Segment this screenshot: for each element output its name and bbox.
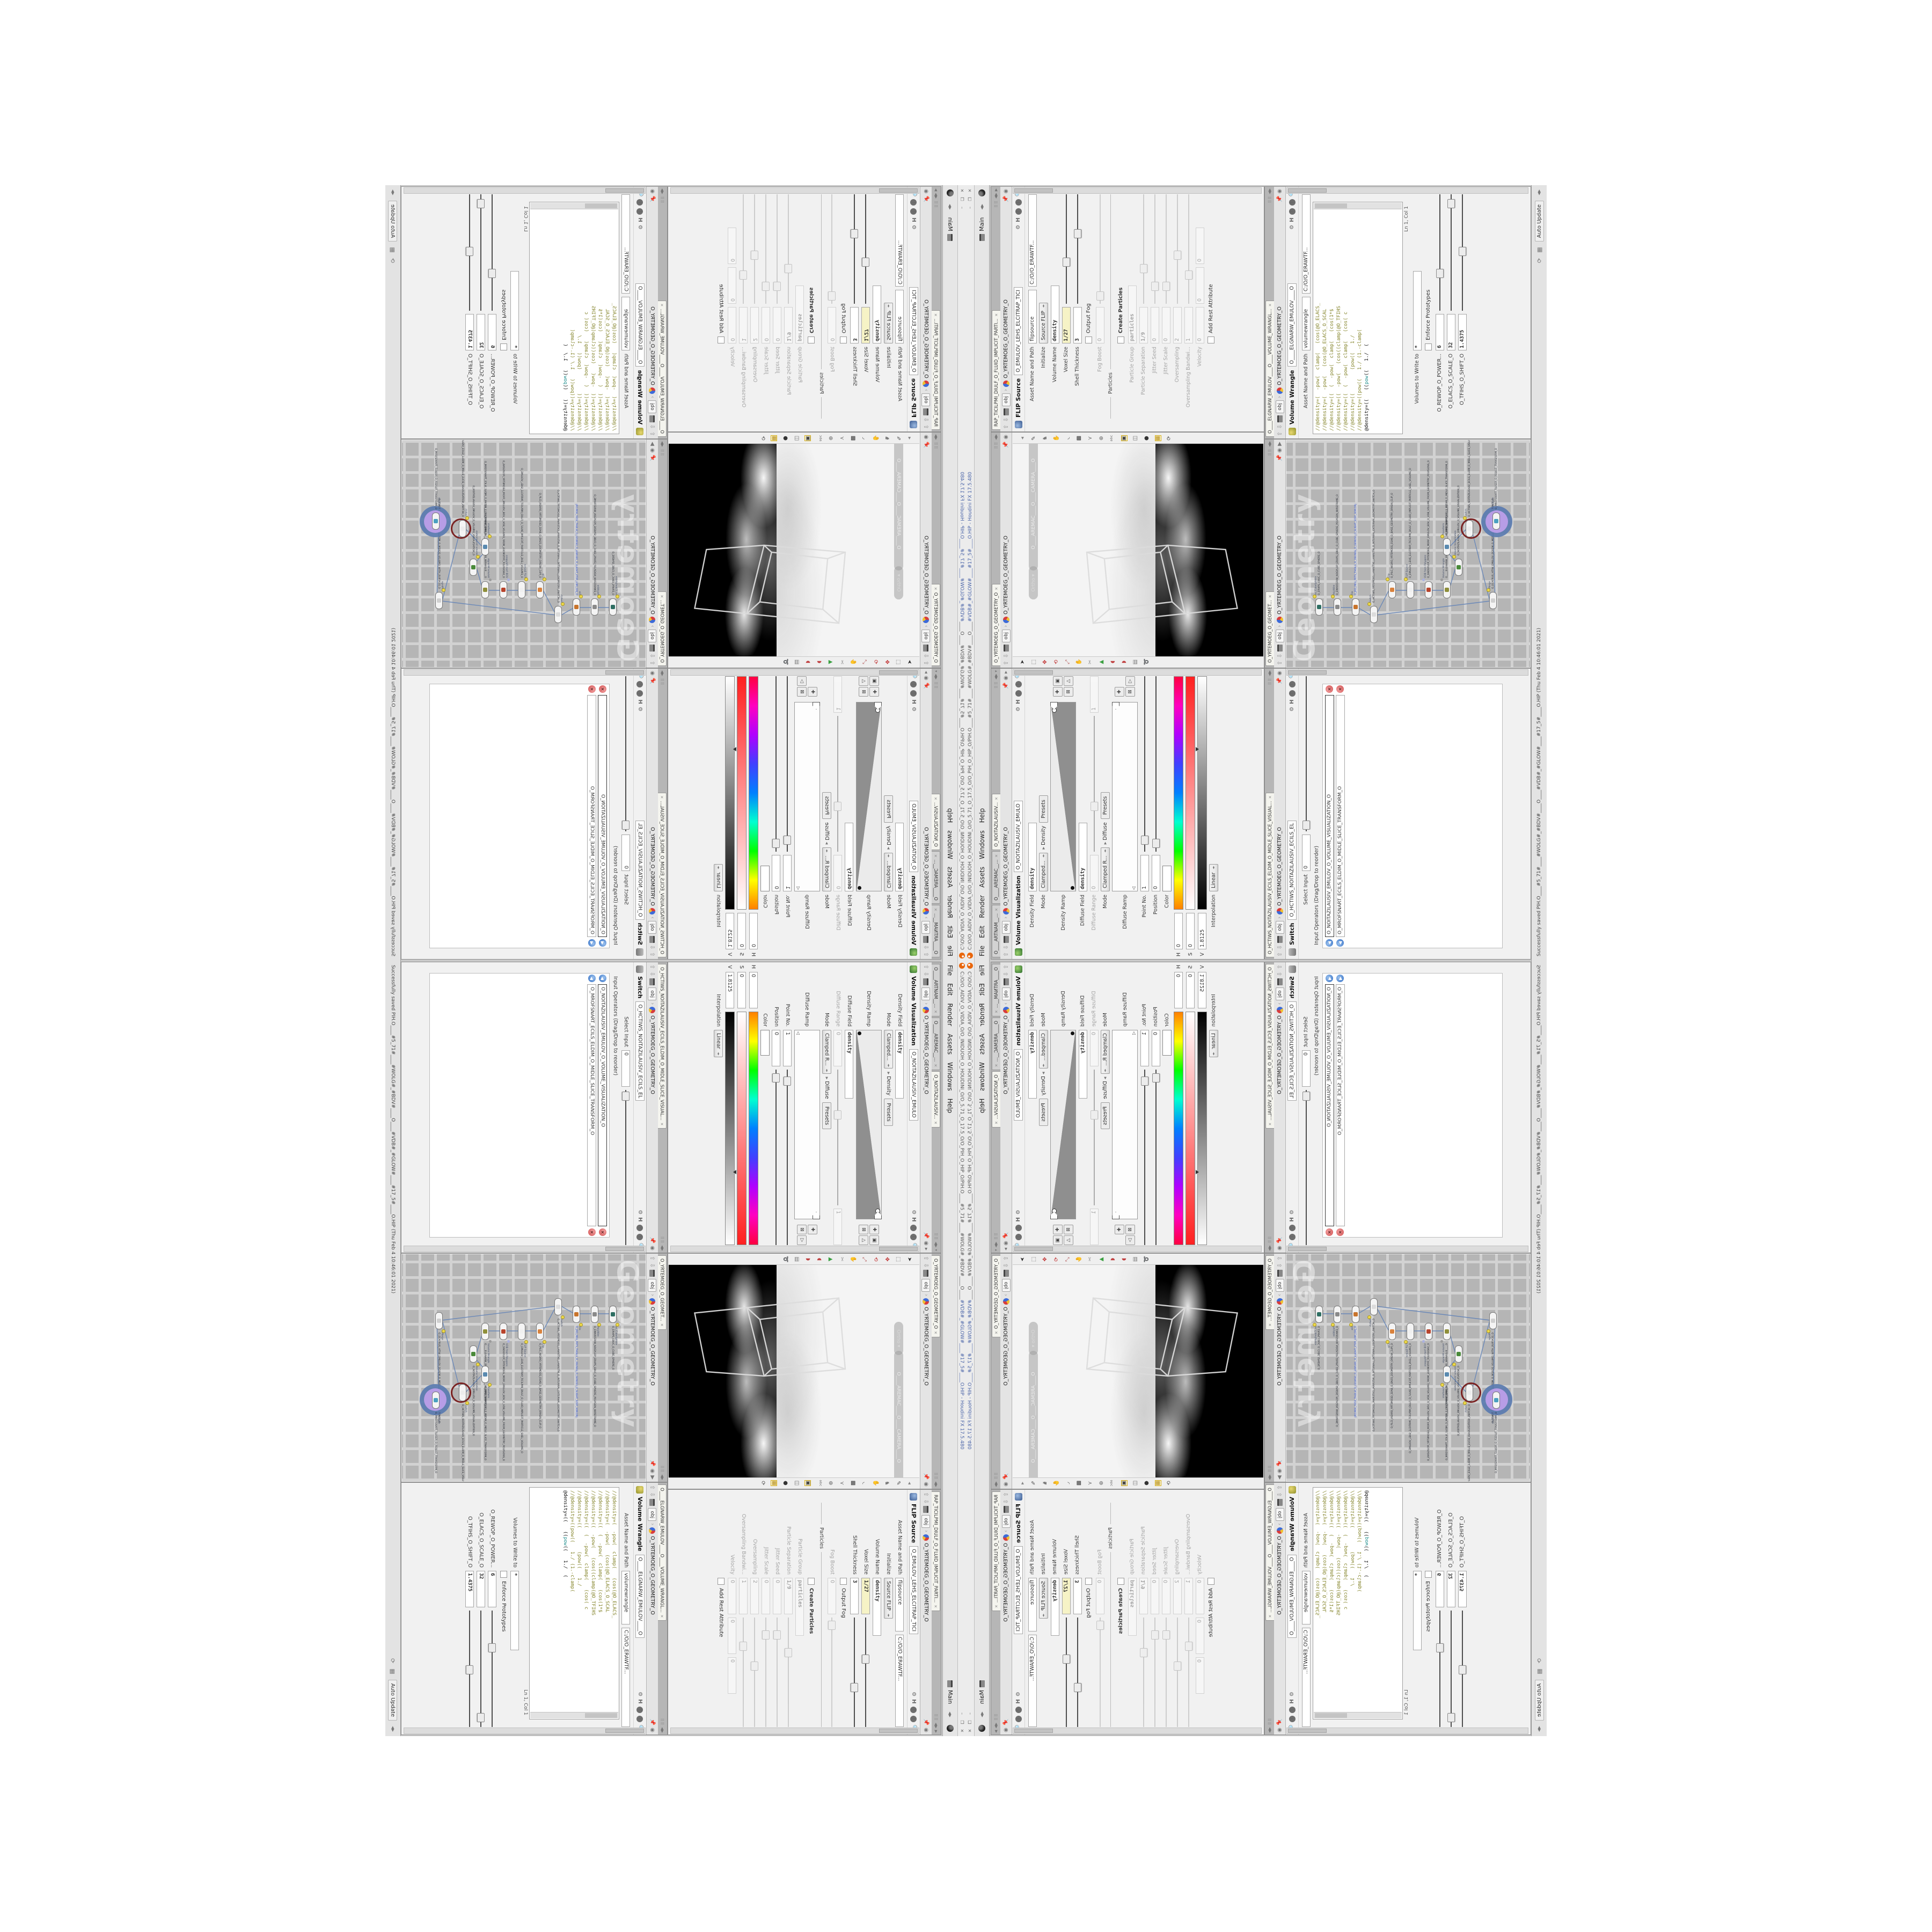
density-ramp[interactable] [856, 702, 882, 891]
eye-box-icon[interactable]: ◫ [1133, 436, 1138, 441]
input-operator-field[interactable]: O_MROFSNART_ECILS_ELDIM_O_MIDLE_SLICE_TR… [1336, 695, 1345, 937]
wire-y-icon[interactable]: ⋎ [839, 1481, 844, 1485]
network-path[interactable]: O_YRTEMOEG_O_GEOMETRY_O [1003, 299, 1009, 378]
output-fog-checkbox[interactable] [1085, 336, 1092, 343]
network-node[interactable] [609, 1306, 617, 1323]
network-path[interactable]: O_YRTEMOEG_O_GEOMETRY_O [1003, 1307, 1009, 1386]
nav-down-icon[interactable]: ⇩ [1002, 971, 1009, 976]
flip-scrollbar[interactable] [670, 1728, 919, 1734]
desktop-selector[interactable]: Main [978, 217, 985, 241]
select-tool-icon[interactable]: ➤ [906, 660, 912, 664]
nav-up-icon[interactable]: ⇧ [1002, 1492, 1009, 1497]
point-no-slider[interactable] [1140, 1070, 1148, 1245]
insert-input-icon[interactable]: ◀ [1336, 939, 1344, 947]
network-path[interactable]: O_YRTEMOEG_O_GEOMETRY_O [1003, 1543, 1009, 1622]
viewport-stage[interactable]: Ortho ▾ O____AREMAC____O____CAMERA____O [669, 444, 919, 656]
pane-menu-icon[interactable]: ▾ [934, 670, 938, 672]
diffuse-range-max-input[interactable]: 1 [834, 676, 843, 713]
target-icon[interactable]: ◉ [923, 435, 929, 440]
menu-item-edit[interactable]: Edit [978, 926, 986, 938]
shell-thickness-input[interactable]: 3 [851, 307, 859, 343]
network-node[interactable] [432, 1392, 440, 1409]
network-path[interactable]: O_YRTEMOEG_O_GEOMETRY_O [923, 536, 929, 614]
camera-pill[interactable]: O____AREMAC____O____CAMERA____O [894, 1351, 903, 1477]
nav-up-icon[interactable]: ⇧ [923, 1492, 930, 1497]
param-value-input[interactable]: 32 [1447, 1571, 1455, 1607]
diffuse-presets-button[interactable]: Presets [822, 1102, 831, 1130]
param-slider[interactable] [1436, 1611, 1444, 1727]
network-node[interactable] [1370, 606, 1378, 623]
network-path[interactable]: O_YRTEMOEG_O_GEOMETRY_O [1003, 536, 1009, 614]
network-node[interactable] [459, 1384, 466, 1401]
scroll-up-icon[interactable]: ◂ [906, 1482, 912, 1484]
nav-down-icon[interactable]: ⇩ [923, 945, 930, 950]
enforce-prototypes-checkbox[interactable] [500, 1571, 507, 1578]
pin-icon[interactable]: 📌 [1003, 1473, 1009, 1480]
box-select-icon[interactable]: ⬚ [895, 660, 901, 664]
pin-icon[interactable]: 📌 [649, 1719, 655, 1725]
volume-name-input[interactable]: density [873, 1578, 882, 1636]
info-icon[interactable]: i [1015, 681, 1022, 687]
network-node[interactable] [1388, 1323, 1396, 1340]
network-path[interactable]: O_YRTEMOEG_O_GEOMETRY_O [1277, 1015, 1283, 1094]
network-node[interactable] [536, 581, 544, 598]
voxel-size-slider[interactable] [1062, 194, 1070, 304]
tab-volume-wrangle[interactable]: O____ELGNARW_EMULOV____O____VOLUME_WRANG… [1265, 301, 1274, 437]
interpolation-dropdown[interactable]: Linear [1209, 1030, 1218, 1057]
hand-tool-icon[interactable]: ✋ [850, 1256, 855, 1262]
diffuse-range-min-input[interactable]: 0 [834, 855, 843, 891]
globe-grid-icon[interactable]: ⊕ [1099, 1481, 1104, 1485]
root-chip[interactable]: obj [1276, 1508, 1284, 1521]
nav-up-icon[interactable]: ⇧ [1276, 952, 1283, 957]
target-icon[interactable]: ◉ [1003, 435, 1009, 440]
node-name-field[interactable]: O_HCTIWS_NOITAZILAUSIV_ECILS_EL [635, 821, 645, 920]
asset-name-input[interactable]: flipsource [896, 1578, 904, 1631]
network-node[interactable] [481, 1366, 489, 1383]
menu-item-render[interactable]: Render [947, 895, 954, 918]
param-slider[interactable] [1447, 1611, 1455, 1727]
swirl-tool-icon[interactable]: ➰ [782, 1256, 788, 1262]
grid-view-icon[interactable]: ▦ [1155, 436, 1161, 441]
ramp-arrow-button[interactable]: ▷ [797, 676, 807, 686]
network-node[interactable] [500, 1323, 507, 1340]
point-no-slider[interactable] [1140, 676, 1148, 852]
pane-split-icon[interactable]: ◀▶ [1268, 441, 1272, 447]
menu-item-render[interactable]: Render [978, 1003, 986, 1026]
network-path[interactable]: O_YRTEMOEG_O_GEOMETRY_O [649, 536, 655, 614]
jitter-scale-slider[interactable] [762, 194, 770, 304]
menu-item-assets[interactable]: Assets [947, 867, 954, 888]
menu-item-assets[interactable]: Assets [947, 1034, 954, 1055]
root-chip[interactable]: obj [648, 1279, 657, 1292]
param-slider[interactable] [488, 194, 496, 311]
close-button[interactable]: ✕ [960, 187, 964, 194]
target-icon[interactable]: ◉ [649, 189, 655, 194]
select-input-field[interactable]: 0 [1302, 1050, 1311, 1087]
pane-split-icon[interactable]: ◀▶ [934, 193, 938, 199]
voxel-size-input[interactable]: 1/27 [1062, 307, 1071, 343]
maximize-button[interactable]: ❐ [968, 1719, 972, 1725]
target-icon[interactable]: ◉ [649, 1469, 655, 1474]
curve-view-icon[interactable]: ◟ [1065, 437, 1071, 440]
add-rest-checkbox[interactable] [1207, 1578, 1214, 1585]
input-operator-field[interactable]: O_MROFSNART_ECILS_ELDIM_O_MIDLE_SLICE_TR… [588, 984, 597, 1226]
houdini-h-icon[interactable]: H [1289, 217, 1295, 222]
node-flag[interactable] [1349, 595, 1353, 598]
select-input-slider[interactable] [1302, 1090, 1310, 1245]
jitter-seed-slider[interactable] [773, 1618, 781, 1727]
eye-box-icon[interactable]: ◫ [1133, 1481, 1138, 1485]
target-icon[interactable]: ◉ [923, 1482, 929, 1487]
gear-icon[interactable]: ⚙ [1289, 1210, 1295, 1214]
pin-icon[interactable]: 📌 [923, 196, 929, 202]
network-node[interactable] [1466, 1384, 1473, 1401]
point-no-input[interactable]: 1 [1140, 855, 1149, 891]
menu-item-help[interactable]: Help [978, 1099, 986, 1113]
nav-down-icon[interactable]: ⇩ [1002, 418, 1009, 422]
scroll-up-icon[interactable]: ◂ [906, 437, 912, 440]
density-ramp[interactable] [1050, 1030, 1076, 1219]
notes-tool-icon[interactable]: ▤ [1133, 1257, 1138, 1262]
desktop-arrows-icon[interactable]: ◀▶ [980, 204, 984, 210]
network-node[interactable] [470, 559, 477, 576]
oversampling-bw-input[interactable]: 1 [1184, 307, 1193, 343]
jitter-scale-input[interactable]: 0 [762, 1578, 771, 1614]
network-path[interactable]: O_YRTEMOEG_O_GEOMETRY_O [923, 1307, 929, 1386]
remove-input-icon[interactable]: ✕ [599, 685, 606, 693]
oversampling-input[interactable]: 2 [751, 307, 759, 343]
diffuse-ramp[interactable]: ◁ [1112, 1030, 1138, 1219]
menu-item-assets[interactable]: Assets [978, 1034, 986, 1055]
scale-tool-icon[interactable]: ⤢ [1065, 660, 1071, 664]
ortho-pill[interactable]: Ortho ▾ [1029, 566, 1038, 599]
rotate-tool-icon[interactable]: ⟲ [1054, 1257, 1059, 1261]
tab-camera[interactable]: O____AREMAC__...✕ [932, 1018, 940, 1070]
nav-down-icon[interactable]: ⇩ [923, 418, 930, 422]
initialize-dropdown[interactable]: Source FLIP [1039, 1578, 1048, 1619]
param-slider[interactable] [466, 194, 474, 311]
globe-grid-icon[interactable]: ⊕ [828, 436, 833, 440]
network-node[interactable] [573, 1306, 580, 1323]
nav-down-icon[interactable]: ⇩ [649, 1263, 656, 1268]
diffuse-ramp[interactable]: ◁ [794, 702, 820, 891]
help-icon[interactable]: ? [637, 1707, 643, 1713]
pen-view-icon[interactable]: ✎ [1031, 436, 1037, 440]
color-swatch[interactable] [1162, 866, 1172, 891]
oversampling-bw-slider[interactable] [740, 194, 748, 304]
param-value-input[interactable]: 1.4375 [466, 314, 474, 350]
ramp-arrow-button[interactable]: ▷ [1125, 1235, 1135, 1245]
velocity-z-input[interactable]: 0 [1196, 228, 1204, 264]
nav-down-icon[interactable]: ⇩ [923, 971, 930, 976]
point-no-slider[interactable] [784, 1070, 792, 1245]
menu-item-windows[interactable]: Windows [947, 1062, 954, 1091]
pan-view-icon[interactable]: ✋ [873, 435, 878, 441]
pin-icon[interactable]: 📌 [1003, 442, 1009, 448]
jitter-seed-slider[interactable] [1151, 194, 1159, 304]
menu-item-render[interactable]: Render [978, 895, 986, 918]
code-scrollbar[interactable] [530, 1712, 618, 1718]
val-strip[interactable] [725, 676, 735, 910]
insert-input-icon[interactable]: ◀ [1336, 975, 1344, 982]
abc-label-icon[interactable]: ᵃᵇᶜ [1110, 1480, 1116, 1487]
tab-scene-view[interactable]: O_YRTEMOEG_O_GEOMETRY_O✕ [932, 1255, 940, 1337]
network-node[interactable] [1407, 1323, 1414, 1340]
expand-icon[interactable]: ▶ [1277, 442, 1283, 446]
tab-volume-wrangle[interactable]: O____ELGNARW_EMULOV____O____VOLUME_WRANG… [1265, 1484, 1274, 1621]
volume-name-input[interactable]: density [1051, 286, 1059, 343]
diffuse-field-input[interactable]: density [845, 1030, 854, 1099]
create-particles-checkbox[interactable] [1117, 1578, 1124, 1585]
sat-strip[interactable] [737, 676, 747, 910]
network-node[interactable] [435, 592, 443, 609]
menu-item-edit[interactable]: Edit [947, 926, 954, 938]
maximize-button[interactable]: ❐ [968, 196, 972, 202]
orbit-view-icon[interactable]: ⟳ [1167, 436, 1172, 440]
input-operator-row[interactable]: ◀ O_MROFSNART_ECILS_ELDIM_O_MIDLE_SLICE_… [1335, 685, 1345, 947]
target-icon[interactable]: ◉ [1277, 671, 1283, 676]
scroll-up-icon[interactable]: ◂ [1020, 437, 1026, 440]
input-operator-field[interactable]: O_MROFSNART_ECILS_ELDIM_O_MIDLE_SLICE_TR… [588, 695, 597, 937]
oversampling-bw-input[interactable]: 1 [740, 1578, 748, 1614]
network-node[interactable] [518, 1323, 525, 1340]
select-input-slider[interactable] [1302, 676, 1310, 831]
oversampling-slider[interactable] [1173, 194, 1181, 304]
pin-icon[interactable]: 📌 [1277, 196, 1283, 202]
enforce-prototypes-checkbox[interactable] [500, 343, 507, 350]
volumes-input[interactable]: * [511, 271, 519, 350]
memory-icon[interactable]: ▦ [390, 1668, 397, 1674]
snap-tool-icon[interactable]: ✂ [1088, 1257, 1093, 1261]
gear-icon[interactable]: ⚙ [1015, 1692, 1021, 1696]
swirl-tool-icon[interactable]: ➰ [1144, 658, 1150, 665]
color-swatch[interactable] [760, 866, 770, 891]
pane-split-icon[interactable]: ◀▶ [1268, 1727, 1272, 1733]
desktop-selector[interactable]: Main [978, 1680, 985, 1704]
expand-icon[interactable]: ▶ [1277, 1475, 1283, 1480]
pane-split-icon[interactable]: ◀▶ [1268, 1474, 1272, 1480]
node-flag[interactable] [543, 577, 546, 581]
density-mode-dropdown[interactable]: Clamped... [1039, 1030, 1048, 1069]
pane-menu-icon[interactable]: ▾ [934, 1249, 938, 1251]
help-icon[interactable]: ? [1289, 690, 1296, 697]
velocity-y-input[interactable]: 0 [728, 267, 737, 304]
node-name-field[interactable]: O____ELGNARW_EMULOV____O [635, 1555, 645, 1638]
gear-icon[interactable]: ⚙ [1289, 225, 1295, 230]
particle-group-input[interactable]: particles [1128, 286, 1137, 343]
network-node[interactable] [554, 1298, 562, 1315]
help-icon[interactable]: ? [1015, 1707, 1022, 1713]
switch-scrollbar[interactable] [1286, 1246, 1528, 1252]
menu-items[interactable]: FileEditRenderAssetsWindowsHelp [978, 808, 986, 956]
network-node[interactable] [432, 513, 440, 530]
flip-scrollbar[interactable] [1013, 187, 1262, 194]
target-icon[interactable]: ◉ [649, 1728, 655, 1732]
pin-icon[interactable]: 📌 [1003, 683, 1009, 689]
houdini-h-icon[interactable]: H [1015, 1217, 1021, 1221]
particle-separation-slider[interactable] [1139, 1618, 1147, 1727]
network-node[interactable] [1443, 538, 1451, 555]
voxel-size-input[interactable]: 1/27 [1062, 1578, 1071, 1614]
status-arrows-icon[interactable]: ◀▶ [1537, 1726, 1541, 1732]
node-name-field[interactable]: O_HCTIWS_NOITAZILAUSIV_ECILS_EL [635, 1001, 645, 1101]
input-operator-row[interactable]: ◀ O_NOITAZILAUSIV_EMULOV_O_VOLUME_VISUAL… [1324, 975, 1335, 1236]
snap-tool-icon[interactable]: ✂ [839, 1257, 844, 1261]
root-chip[interactable]: obj [1002, 1279, 1011, 1292]
jitter-seed-input[interactable]: 0 [773, 307, 782, 343]
nav-up-icon[interactable]: ⇧ [1002, 964, 1009, 969]
particle-separation-slider[interactable] [1139, 194, 1147, 304]
window-buttons[interactable]: – ❐ ✕ [960, 187, 964, 211]
oversampling-input[interactable]: 2 [751, 1578, 759, 1614]
maximize-button[interactable]: ❐ [960, 1719, 964, 1725]
houdini-h-icon[interactable]: H [1015, 699, 1021, 704]
help-icon[interactable]: ? [911, 1707, 917, 1713]
particle-group-input[interactable]: particles [1128, 1578, 1137, 1636]
node-name-field[interactable]: O_EMULOV_LEHS_ELCITRAP_TICI [909, 1546, 918, 1634]
position-input[interactable]: 0 [772, 1030, 781, 1066]
remove-input-icon[interactable]: ✕ [1326, 685, 1333, 693]
shell-thickness-input[interactable]: 3 [1073, 1578, 1082, 1614]
viewport-stage[interactable]: Ortho ▾ O____AREMAC____O____CAMERA____O [669, 1265, 919, 1477]
memory-icon[interactable]: ▦ [1536, 1668, 1543, 1674]
menu-item-windows[interactable]: Windows [978, 1062, 986, 1091]
diffuse-range-min-input[interactable]: 0 [1090, 1030, 1099, 1066]
density-mode-dropdown[interactable]: Clamped... [884, 853, 893, 891]
refresh-icon[interactable]: ⟳ [390, 258, 397, 263]
pen-view-icon[interactable]: ✎ [895, 436, 901, 440]
network-path[interactable]: O_YRTEMOEG_O_GEOMETRY_O [923, 1015, 929, 1094]
tab-flip-source[interactable]: RAP_TICILPMI_DIULF_O_FLUID_IMPLICIT_PART… [932, 310, 940, 430]
curve-view-icon[interactable]: ◟ [861, 1482, 867, 1484]
help-icon[interactable]: ? [1015, 208, 1022, 215]
pane-split-icon[interactable]: ◀▶ [994, 1723, 998, 1729]
fog-boost-input[interactable]: 0 [828, 307, 837, 343]
pin-icon[interactable]: 📌 [923, 442, 929, 448]
tab-mantra[interactable]: O____ARTNAM__...✕ [992, 964, 1000, 1016]
ramp-del-button[interactable]: ⊠ [797, 687, 807, 697]
diffuse-ramp[interactable]: ◁ [1112, 702, 1138, 891]
box-select-icon[interactable]: ⬚ [895, 1257, 901, 1262]
input-operator-row[interactable]: ◀ O_MROFSNART_ECILS_ELDIM_O_MIDLE_SLICE_… [587, 685, 597, 947]
density-presets-button[interactable]: Presets [884, 795, 893, 823]
network-path[interactable]: O_YRTEMOEG_O_GEOMETRY_O [649, 1536, 655, 1615]
translate-tool-icon[interactable]: ✥ [884, 1257, 889, 1261]
pane-split-icon[interactable]: ◀▶ [660, 188, 664, 194]
param-value-input[interactable]: 1.4375 [1458, 1571, 1467, 1607]
tab-flip-source[interactable]: RAP_TICILPMI_DIULF_O_FLUID_IMPLICIT_PART… [992, 1491, 1000, 1611]
tab-visualization[interactable]: O_NOITAZILAUSIV...✕ [932, 1071, 940, 1128]
input-operator-field[interactable]: O_NOITAZILAUSIV_EMULOV_O_VOLUME_VISUALIZ… [1325, 695, 1334, 937]
volumes-input[interactable]: * [1413, 271, 1422, 350]
voxel-size-slider[interactable] [862, 194, 870, 304]
gear-icon[interactable]: ⚙ [1015, 707, 1021, 712]
select-tool-icon[interactable]: ➤ [1020, 660, 1026, 664]
info-icon[interactable]: i [1015, 1716, 1022, 1722]
create-particles-checkbox[interactable] [1117, 336, 1124, 343]
root-chip[interactable]: obj [1276, 400, 1284, 413]
menu-item-file[interactable]: File [947, 946, 954, 956]
val-input[interactable]: 1.8125 [1198, 972, 1206, 1008]
pane-play-icon[interactable]: ▶ [994, 1730, 998, 1733]
walk-view-icon[interactable]: ♞ [1043, 1481, 1048, 1485]
wrangle-scrollbar[interactable] [404, 1728, 646, 1734]
network-node[interactable] [1352, 598, 1359, 616]
network-node[interactable] [459, 520, 466, 537]
diffuse-ramp[interactable]: ◁ [794, 1030, 820, 1219]
node-name-field[interactable]: O_HCTIWS_NOITAZILAUSIV_ECILS_EL [1287, 821, 1297, 920]
root-chip[interactable]: obj [1276, 921, 1284, 934]
interpolation-dropdown[interactable]: Linear [714, 864, 723, 891]
houdini-h-icon[interactable]: H [637, 1217, 643, 1221]
tab-camera[interactable]: O____AREMAC__...✕ [992, 851, 1000, 904]
memory-icon[interactable]: ▦ [390, 247, 397, 252]
jitter-scale-input[interactable]: 0 [762, 307, 771, 343]
network-path[interactable]: O_YRTEMOEG_O_GEOMETRY_O [649, 827, 655, 906]
color-triangle-icon[interactable]: ▲ [1099, 1257, 1104, 1262]
nav-up-icon[interactable]: ⇧ [1276, 1256, 1283, 1261]
root-chip[interactable]: obj [922, 393, 931, 406]
pin-icon[interactable]: 📌 [1277, 455, 1283, 461]
tab-network[interactable]: O_YRTEMOEG_O_GEOMET...✕ [1265, 591, 1274, 666]
network-node[interactable] [1455, 559, 1462, 576]
asset-path-input[interactable]: C:/O/O_ERAWTF... [896, 194, 904, 287]
auto-update-selector[interactable]: Auto Update [1535, 201, 1544, 242]
nav-down-icon[interactable]: ⇩ [1276, 971, 1283, 976]
node-name-field[interactable]: O_NOITAZILAUSIV_EMULO [1014, 801, 1023, 872]
nav-down-icon[interactable]: ⇩ [1002, 1263, 1009, 1268]
select-input-field[interactable]: 0 [1302, 835, 1311, 871]
hand-tool-icon[interactable]: ✋ [1077, 1256, 1082, 1262]
diffuse-field-input[interactable]: density [845, 823, 854, 891]
val-strip[interactable] [1197, 676, 1207, 910]
pan-view-icon[interactable]: ✋ [1054, 1480, 1059, 1486]
magnet-a-icon[interactable]: ◖ [816, 661, 822, 663]
node-name-field[interactable]: O_HCTIWS_NOITAZILAUSIV_ECILS_EL [1287, 1001, 1297, 1101]
desktop-arrows-icon[interactable]: ◀▶ [980, 1711, 984, 1717]
particle-group-input[interactable]: particles [796, 286, 804, 343]
target-icon[interactable]: ◉ [923, 1728, 929, 1732]
desktop-selector[interactable]: Main [947, 1680, 954, 1704]
nav-up-icon[interactable]: ⇧ [1276, 661, 1283, 665]
initialize-dropdown[interactable]: Source FLIP [1039, 303, 1048, 343]
diffuse-field-input[interactable]: density [1079, 1030, 1087, 1099]
density-mode-dropdown[interactable]: Clamped... [884, 1030, 893, 1069]
particle-separation-input[interactable]: 1/9 [1139, 1578, 1148, 1614]
volvis-scrollbar[interactable] [670, 669, 919, 676]
root-chip[interactable]: obj [1276, 630, 1284, 642]
network-node[interactable] [1492, 513, 1500, 530]
menu-item-help[interactable]: Help [978, 808, 986, 823]
tab-visualization[interactable]: O_NOITAZILAUSIV...✕ [992, 1071, 1000, 1128]
ramp-add-button[interactable]: ✚ [1115, 1225, 1124, 1234]
network-node[interactable] [1334, 1306, 1341, 1323]
diffuse-field-input[interactable]: density [1079, 823, 1087, 891]
dark-box-icon[interactable]: ▩ [1077, 436, 1082, 441]
jitter-scale-slider[interactable] [1162, 194, 1170, 304]
network-node[interactable] [1425, 581, 1432, 598]
network-node[interactable] [591, 1306, 598, 1323]
menu-item-file[interactable]: File [947, 965, 954, 976]
root-chip[interactable]: obj [648, 1508, 657, 1521]
input-operator-row[interactable]: ◀ O_MROFSNART_ECILS_ELDIM_O_MIDLE_SLICE_… [1335, 975, 1345, 1236]
color-swatch[interactable] [1162, 1030, 1172, 1056]
network-node[interactable] [435, 1312, 443, 1329]
network-path[interactable]: O_YRTEMOEG_O_GEOMETRY_O [923, 299, 929, 378]
houdini-h-icon[interactable]: H [911, 1217, 917, 1221]
ramp-add-button[interactable]: ✚ [808, 687, 817, 697]
